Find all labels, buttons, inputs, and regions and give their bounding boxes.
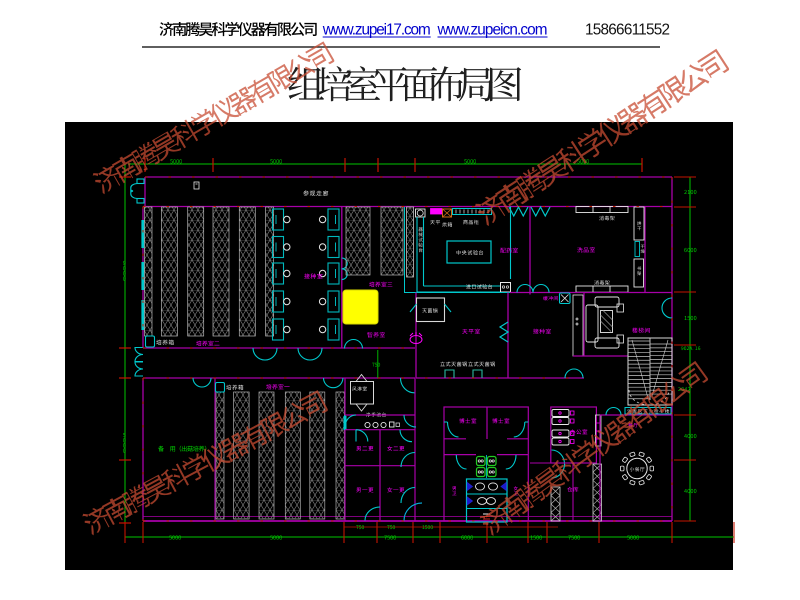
svg-text:www.zupeicn.com: www.zupeicn.com (437, 22, 548, 39)
svg-text:15866611552: 15866611552 (585, 22, 670, 39)
svg-text:www.zupei17.com: www.zupei17.com (322, 22, 431, 39)
